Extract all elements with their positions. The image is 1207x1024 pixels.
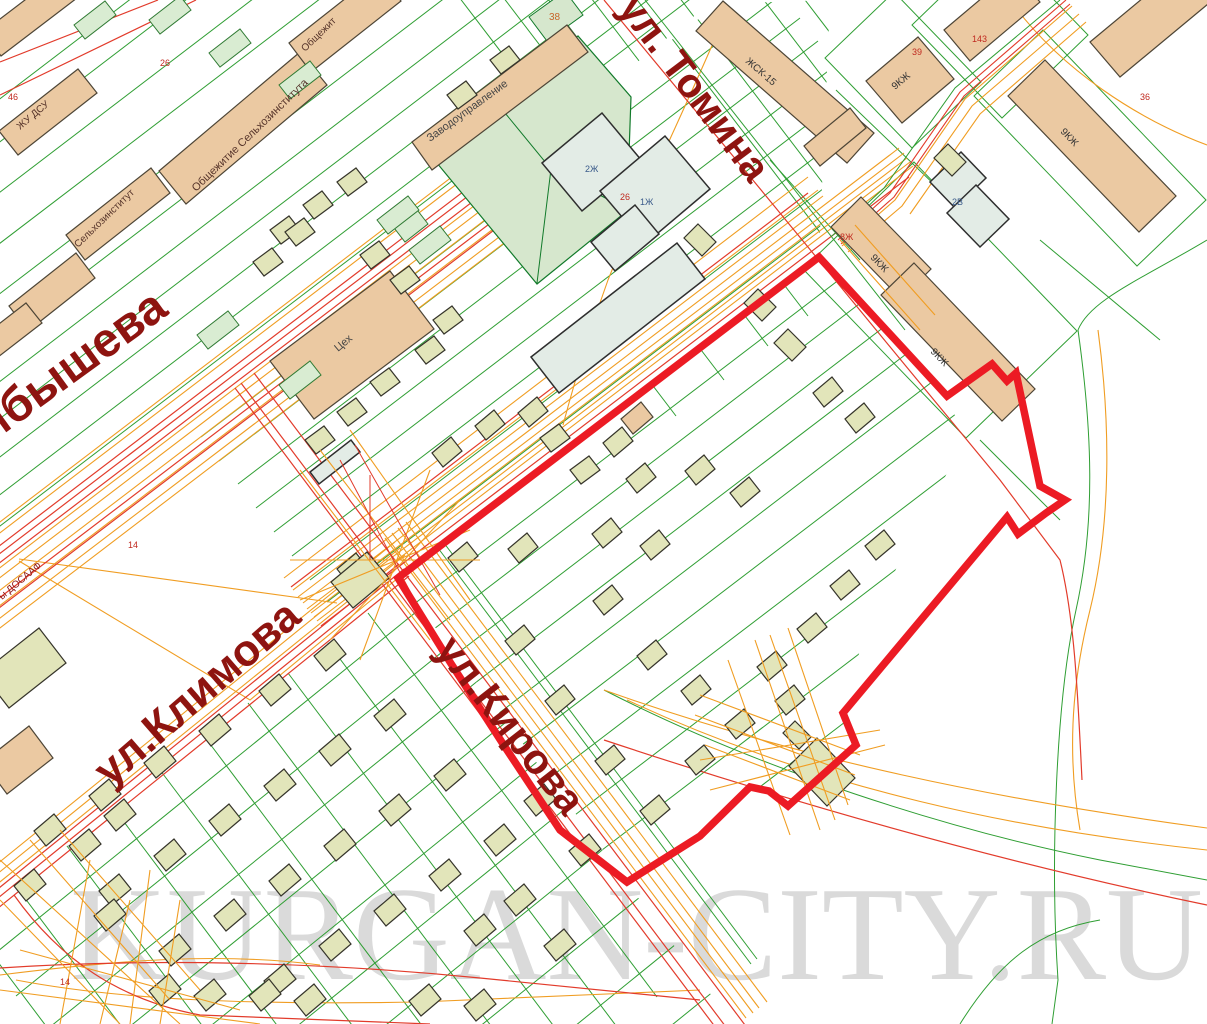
- svg-text:14: 14: [60, 977, 70, 987]
- svg-text:143: 143: [972, 34, 987, 44]
- svg-text:26: 26: [160, 58, 170, 68]
- svg-text:26: 26: [620, 192, 630, 202]
- svg-text:1Ж: 1Ж: [640, 197, 654, 207]
- svg-text:46: 46: [8, 92, 18, 102]
- svg-text:39: 39: [912, 47, 922, 57]
- svg-text:8Ж: 8Ж: [840, 232, 854, 242]
- svg-text:36: 36: [1140, 92, 1150, 102]
- svg-text:2В: 2В: [952, 197, 963, 207]
- svg-text:KURGAN-CITY.RU: KURGAN-CITY.RU: [70, 860, 1203, 1008]
- svg-text:2Ж: 2Ж: [585, 164, 599, 174]
- svg-text:38: 38: [549, 12, 561, 23]
- svg-text:14: 14: [128, 540, 138, 550]
